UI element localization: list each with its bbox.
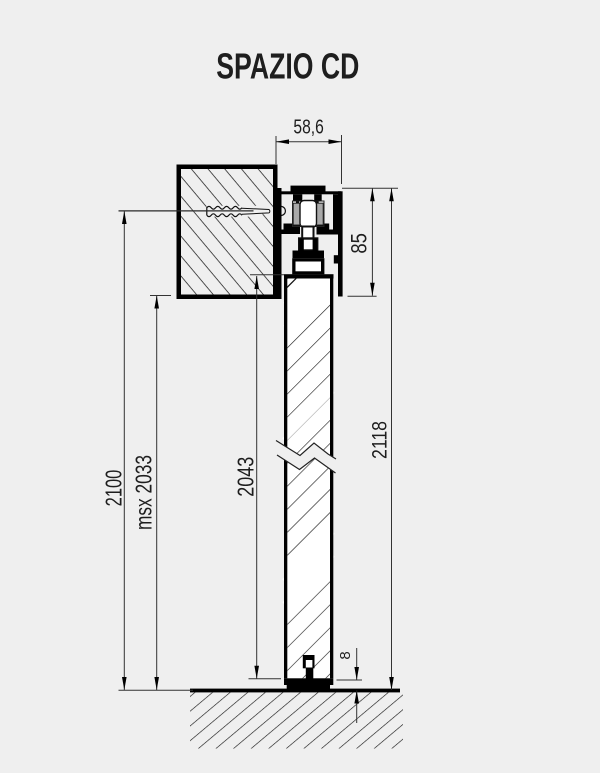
svg-text:2100: 2100 xyxy=(101,470,127,507)
svg-text:msx 2033: msx 2033 xyxy=(131,455,157,530)
svg-text:58,6: 58,6 xyxy=(293,116,323,138)
svg-text:2043: 2043 xyxy=(232,457,258,497)
svg-text:85: 85 xyxy=(347,233,372,254)
svg-text:8: 8 xyxy=(337,651,354,659)
svg-text:2118: 2118 xyxy=(369,421,392,459)
svg-text:SPAZIO CD: SPAZIO CD xyxy=(216,46,359,87)
